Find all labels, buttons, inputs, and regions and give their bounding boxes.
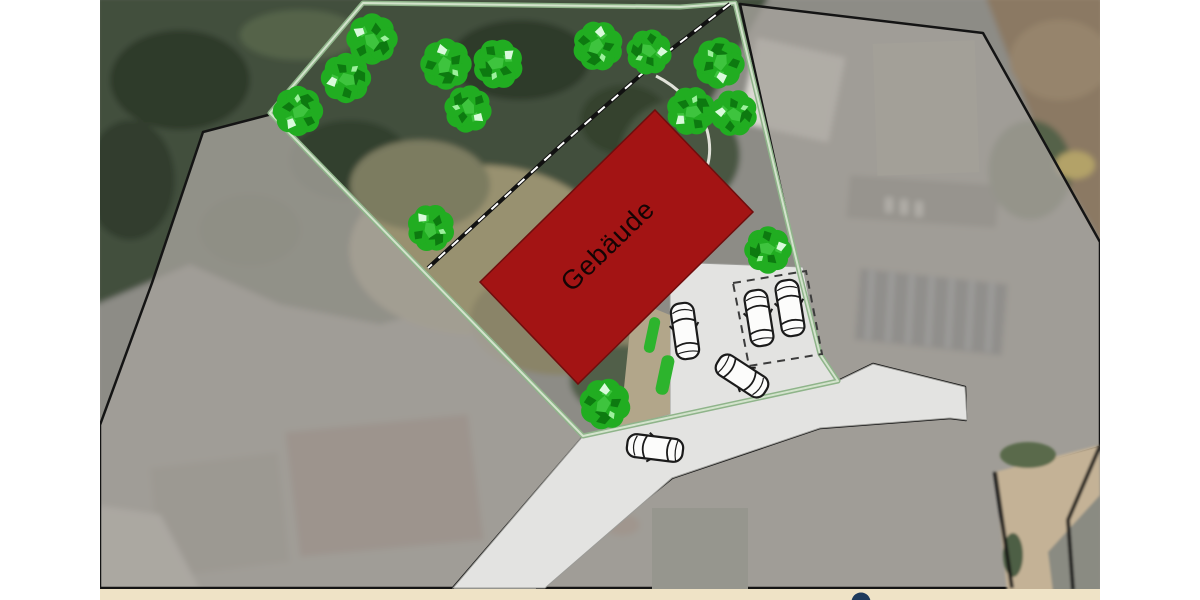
site-plan-view: Gebäude bbox=[0, 0, 1200, 600]
existing-building-block bbox=[652, 508, 748, 590]
existing-building-block bbox=[873, 40, 980, 175]
tree bbox=[346, 13, 398, 65]
tree bbox=[273, 86, 323, 136]
page-margin-left bbox=[0, 0, 100, 600]
footer-strip bbox=[100, 589, 1100, 600]
page-margin-right bbox=[1100, 0, 1200, 600]
site-plan-canvas: Gebäude bbox=[0, 0, 1200, 600]
